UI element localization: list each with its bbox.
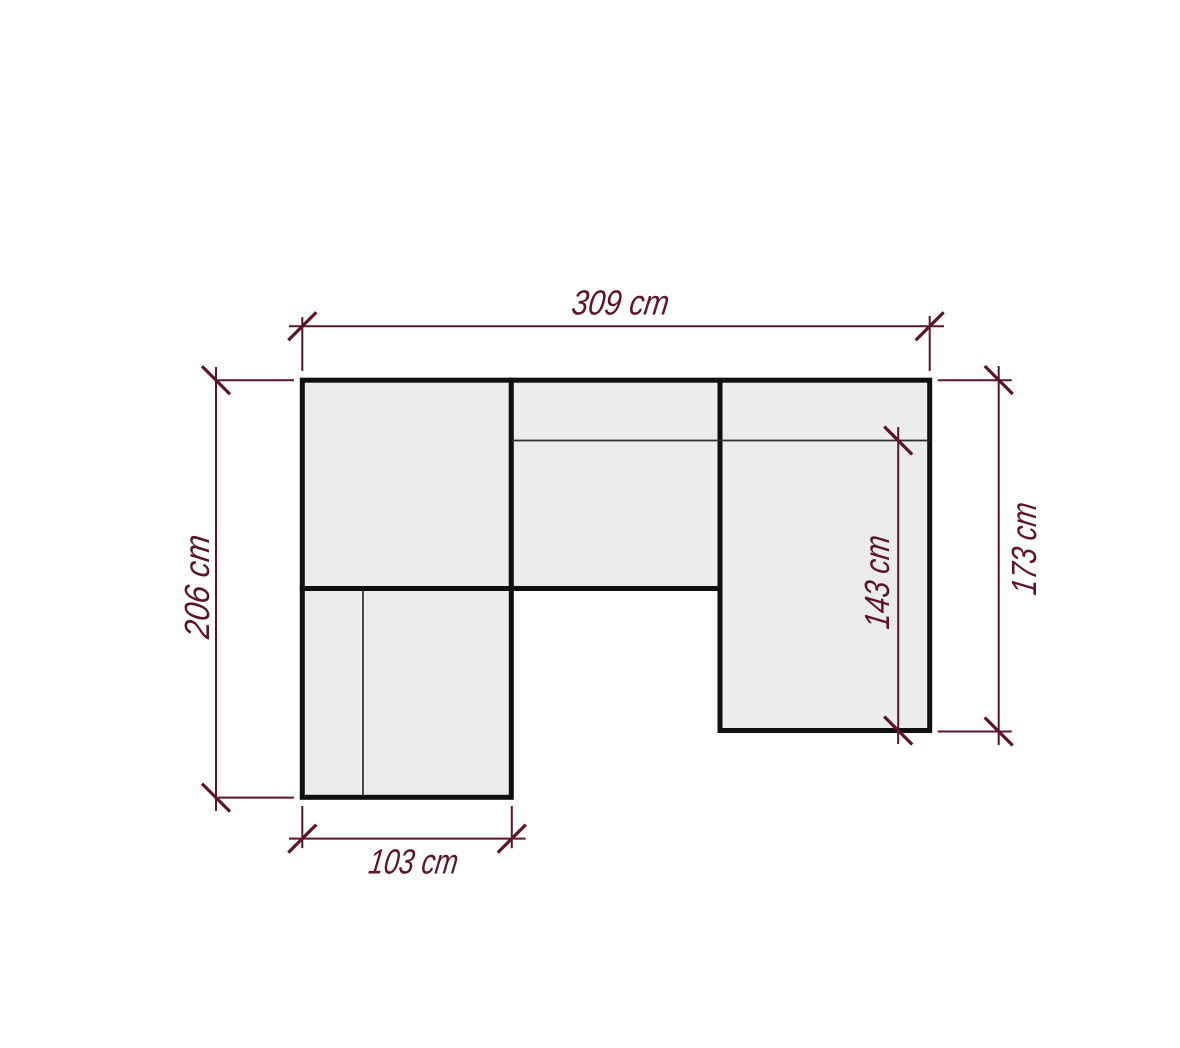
- svg-text:173 cm: 173 cm: [1005, 500, 1044, 597]
- svg-text:103 cm: 103 cm: [366, 843, 460, 882]
- svg-text:206 cm: 206 cm: [178, 532, 217, 641]
- svg-text:309 cm: 309 cm: [569, 284, 671, 323]
- svg-text:143 cm: 143 cm: [858, 533, 897, 631]
